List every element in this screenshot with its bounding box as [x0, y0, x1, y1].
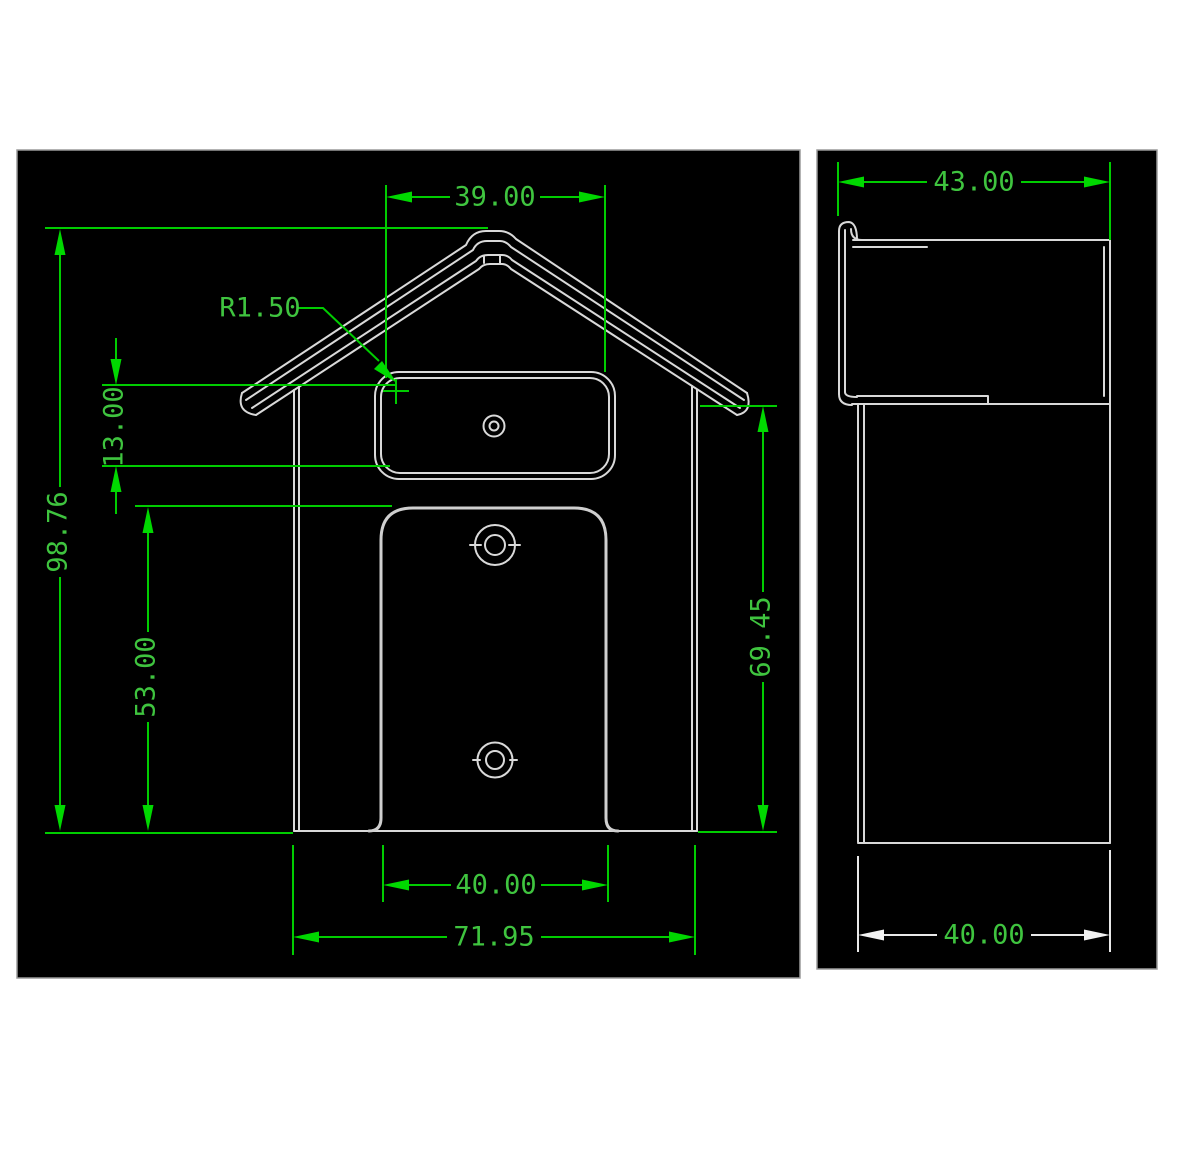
side-view-panel — [817, 150, 1157, 969]
dim-slot-height-text: 13.00 — [99, 386, 130, 467]
drawing-canvas: 39.00 R1.50 13.00 98.76 — [0, 0, 1182, 1172]
dim-base-depth-text: 40.00 — [943, 920, 1024, 951]
cad-drawing: 39.00 R1.50 13.00 98.76 — [0, 0, 1182, 1172]
dim-top-width-text: 39.00 — [454, 182, 535, 213]
dim-body-height-text: 69.45 — [746, 596, 777, 677]
dim-overall-width-text: 71.95 — [453, 922, 534, 953]
dim-channel-width-text: 40.00 — [455, 870, 536, 901]
dim-overall-height-text: 98.76 — [43, 491, 74, 572]
dim-top-depth-text: 43.00 — [933, 167, 1014, 198]
dim-channel-height-text: 53.00 — [131, 636, 162, 717]
front-view-panel — [17, 150, 800, 978]
dim-fillet-radius-text: R1.50 — [219, 293, 300, 324]
